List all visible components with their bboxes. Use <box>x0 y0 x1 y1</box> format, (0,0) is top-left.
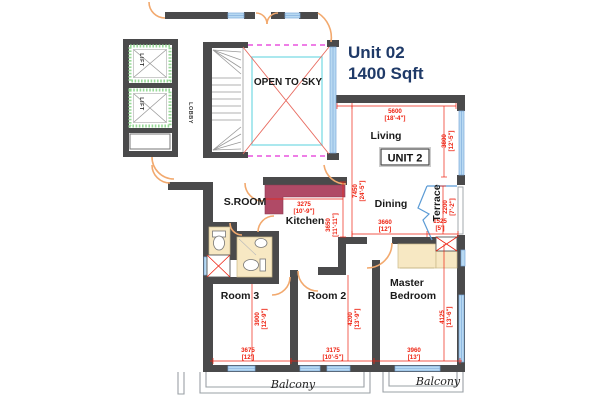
dim-living-width-mm: 5600 <box>388 108 402 115</box>
label-open-to-sky: OPEN TO SKY <box>254 77 322 88</box>
dim-master-width-ft: [13'] <box>408 354 420 361</box>
dim-dining-width-ft: [12'] <box>379 226 391 233</box>
dim-dining-width-mm: 3660 <box>378 219 392 226</box>
dim-unit-depth-ft: [24'-5"] <box>359 181 366 202</box>
dim-kitchen-width-ft: [10'-9"] <box>294 208 315 215</box>
label-master-line1: Master <box>390 277 424 289</box>
plan-title: Unit 02 1400 Sqft <box>348 43 424 83</box>
toilet-bowl-1 <box>214 236 225 250</box>
lift-shafts <box>130 46 170 149</box>
dim-room3-width-ft: [12'] <box>242 354 254 361</box>
label-balcony-left: Balcony <box>270 378 316 391</box>
title-area: 1400 Sqft <box>348 64 424 83</box>
stairs <box>212 48 243 152</box>
dim-room3-height-ft: [12'-9"] <box>261 309 268 330</box>
label-room2: Room 2 <box>308 290 347 302</box>
label-room3: Room 3 <box>221 290 260 302</box>
title-unit: Unit 02 <box>348 43 405 62</box>
dim-room2-width-ft: [10'-5"] <box>323 354 344 361</box>
dim-room2-width-mm: 3175 <box>326 347 340 354</box>
dim-terrace-width-ft: [5'] <box>435 225 444 232</box>
dim-living-width-ft: [18'-4"] <box>385 115 406 122</box>
label-terrace: Terrace <box>431 184 443 221</box>
floor-plan: 5600 [18'-4"] 3800 [12'-5"] 7450 [24'-5"… <box>0 0 600 400</box>
dim-kitchen-height-ft: [11'-11"] <box>332 213 339 237</box>
label-master-line2: Bedroom <box>390 290 436 302</box>
dim-room3-height-mm: 3900 <box>254 312 261 326</box>
terrace-railing <box>458 187 463 234</box>
dim-master-height-ft: [13'-6"] <box>446 307 453 328</box>
dim-kitchen-width-mm: 3275 <box>297 201 311 208</box>
floor-plan-drawing: 5600 [18'-4"] 3800 [12'-5"] 7450 [24'-5"… <box>0 0 600 400</box>
dim-master-width-mm: 3960 <box>407 347 421 354</box>
label-kitchen: Kitchen <box>286 215 325 227</box>
dim-unit-depth-mm: 7450 <box>352 184 359 198</box>
label-lobby: LOBBY <box>187 102 193 124</box>
room-labels: Living Dining Kitchen S.ROOM Room 3 Room… <box>138 53 461 391</box>
open-to-sky-court <box>243 45 329 156</box>
label-living: Living <box>371 130 402 142</box>
dim-kitchen-height-mm: 3650 <box>325 218 332 232</box>
dim-terrace-height-ft: [7'-2"] <box>449 198 456 215</box>
toilet-tank-2 <box>260 259 266 271</box>
dim-room2-height-mm: 4200 <box>347 312 354 326</box>
label-balcony-right: Balcony <box>415 375 461 388</box>
basin <box>255 239 267 248</box>
toilet-bowl-2 <box>244 260 259 271</box>
label-lift-top: LIFT <box>138 53 144 67</box>
label-lift-bottom: LIFT <box>138 97 144 111</box>
dim-living-height-mm: 3800 <box>441 134 448 148</box>
lift-lobby-cell <box>130 134 170 149</box>
dim-master-height-mm: 4125 <box>439 310 446 324</box>
dim-room3-width-mm: 3675 <box>241 347 255 354</box>
label-unit-2: UNIT 2 <box>388 153 423 165</box>
dim-room2-height-ft: [13'-9"] <box>354 309 361 330</box>
dim-living-height-ft: [12'-5"] <box>448 131 455 152</box>
unit-label-box: UNIT 2 <box>380 148 431 167</box>
label-sroom: S.ROOM <box>224 196 267 208</box>
label-dining: Dining <box>375 198 408 210</box>
dim-terrace-height-mm: 2200 <box>442 200 449 214</box>
